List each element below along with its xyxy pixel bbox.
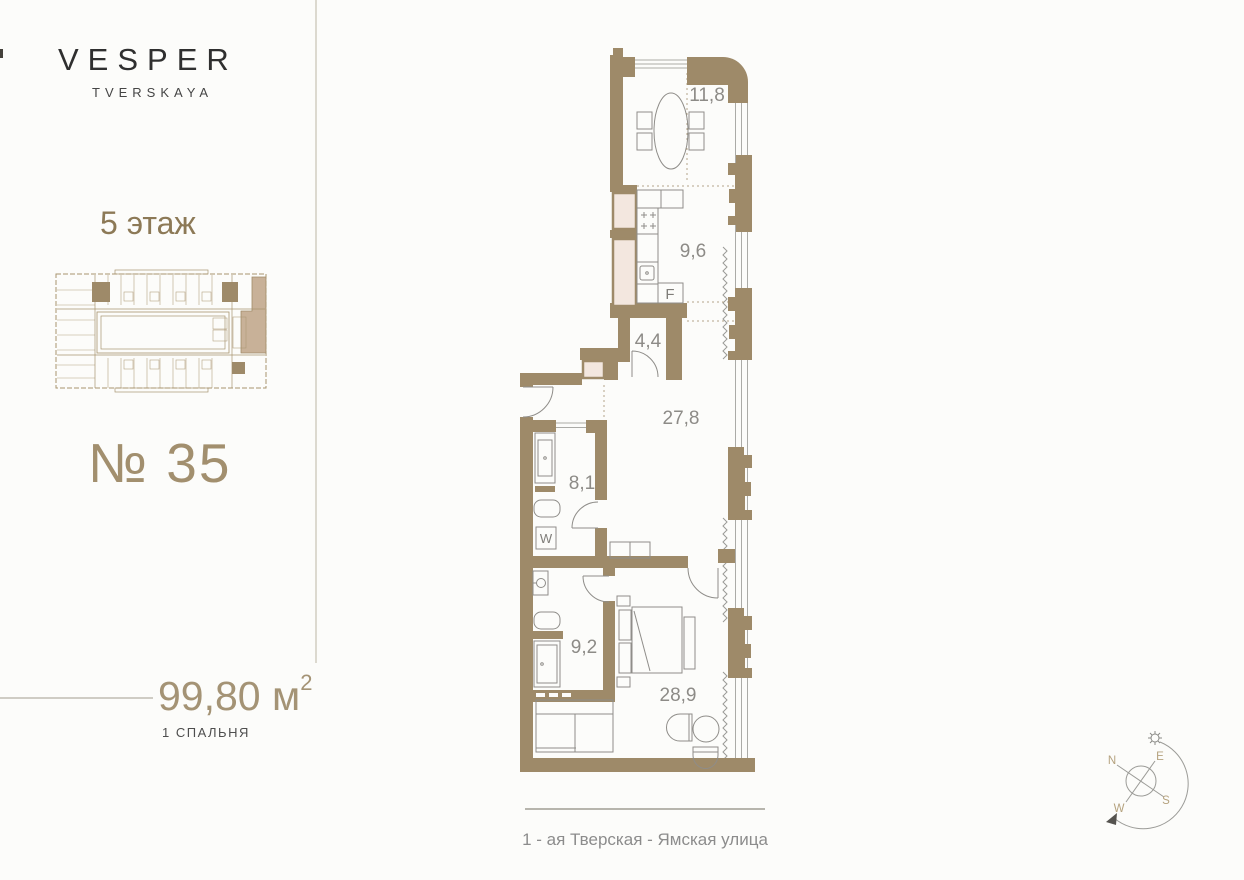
room-label-hallway: 4,4 <box>635 331 662 352</box>
room-label-bathroom-1: 8,1 <box>569 473 595 494</box>
dining-chairs <box>637 112 704 150</box>
compass-s: S <box>1162 795 1170 807</box>
threshold-marks <box>536 693 571 697</box>
mini-plan-unit-partitions <box>57 275 246 388</box>
bench <box>684 617 695 669</box>
stove-burners <box>641 212 656 229</box>
wardrobe <box>536 700 613 752</box>
compass-e: E <box>1156 751 1164 763</box>
bed <box>617 596 682 687</box>
mini-plan-cores <box>92 282 245 374</box>
room-label-dining: 11,8 <box>689 85 725 106</box>
bedroom-door <box>688 568 718 598</box>
bedroom-chair-left <box>667 714 693 741</box>
compass-n: N <box>1108 755 1116 767</box>
dining-table <box>654 93 688 169</box>
mini-floor-plan <box>56 270 266 392</box>
living-console <box>610 542 650 558</box>
room-label-kitchen: 9,6 <box>680 241 706 262</box>
compass: N E S W <box>1106 731 1188 829</box>
room-label-bedroom: 28,9 <box>660 685 697 706</box>
zigzag-glazing <box>723 247 727 760</box>
fridge-mark: F <box>665 286 674 303</box>
bedroom-table <box>693 716 719 742</box>
sun-icon <box>1148 731 1162 745</box>
brochure-page: VESPER TVERSKAYA 5 этаж № 35 99,80 м2 1 … <box>0 0 1244 880</box>
room-label-bathroom-2: 9,2 <box>571 637 597 658</box>
sun-path-arc <box>1114 742 1188 829</box>
washer-mark: W <box>540 531 553 546</box>
hallway-door <box>632 351 658 377</box>
bathroom-2-door <box>583 576 609 602</box>
kitchen-sink <box>640 266 654 280</box>
walls <box>520 48 755 772</box>
mini-plan-unit-highlight <box>241 277 266 353</box>
bathroom-1-door <box>572 502 598 528</box>
entry-door <box>523 387 553 417</box>
bathroom-2-fixtures <box>533 571 560 687</box>
kitchen-counter <box>637 190 683 303</box>
floor-plan: 11,8 9,6 4,4 27,8 8,1 9,2 28,9 F W <box>520 48 755 772</box>
room-label-living: 27,8 <box>663 408 700 429</box>
plan-graphics: 11,8 9,6 4,4 27,8 8,1 9,2 28,9 F W <box>0 0 1244 880</box>
compass-w: W <box>1114 803 1125 815</box>
